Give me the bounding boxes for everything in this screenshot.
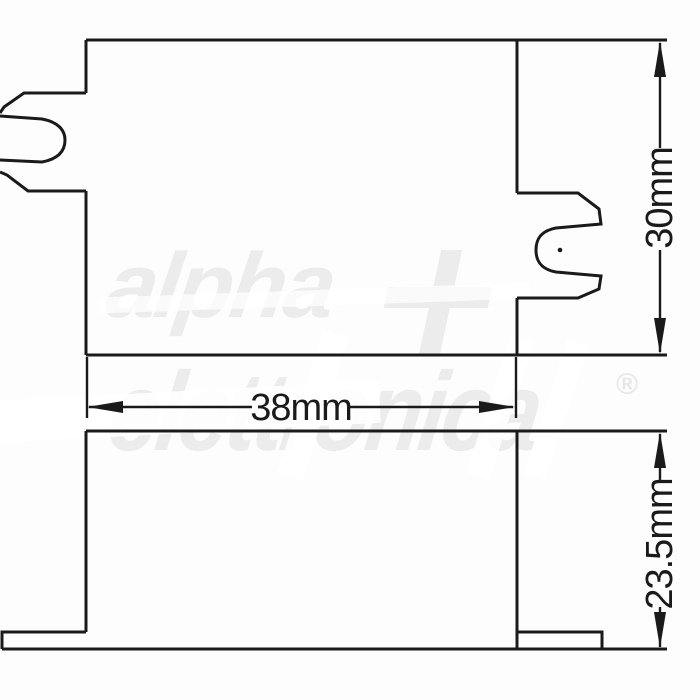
width-dimension-label: 38mm	[250, 387, 352, 429]
arrowhead-down-icon	[654, 612, 666, 648]
arrowhead-left-icon	[87, 401, 123, 413]
front-view-left-flange	[2, 632, 86, 649]
drawing-canvas: alpha elettronica ® 38mm	[0, 0, 700, 700]
arrowhead-up-icon	[654, 41, 666, 77]
dimension-drawing: 38mm 30mm 23.5mm	[0, 0, 700, 700]
front-view-right-flange	[517, 632, 602, 649]
depth-dimension-label: 23.5mm	[639, 478, 681, 609]
pilot-hole-dot	[558, 248, 563, 253]
left-clip-cavity	[0, 116, 65, 162]
right-clip-outline	[517, 193, 601, 298]
height-dimension-label: 30mm	[639, 147, 681, 249]
arrowhead-right-icon	[479, 401, 515, 413]
arrowhead-up-icon	[654, 432, 666, 468]
left-clip-top-lip	[0, 93, 86, 113]
left-clip-bottom-lip	[0, 172, 86, 191]
arrowhead-down-icon	[654, 318, 666, 354]
